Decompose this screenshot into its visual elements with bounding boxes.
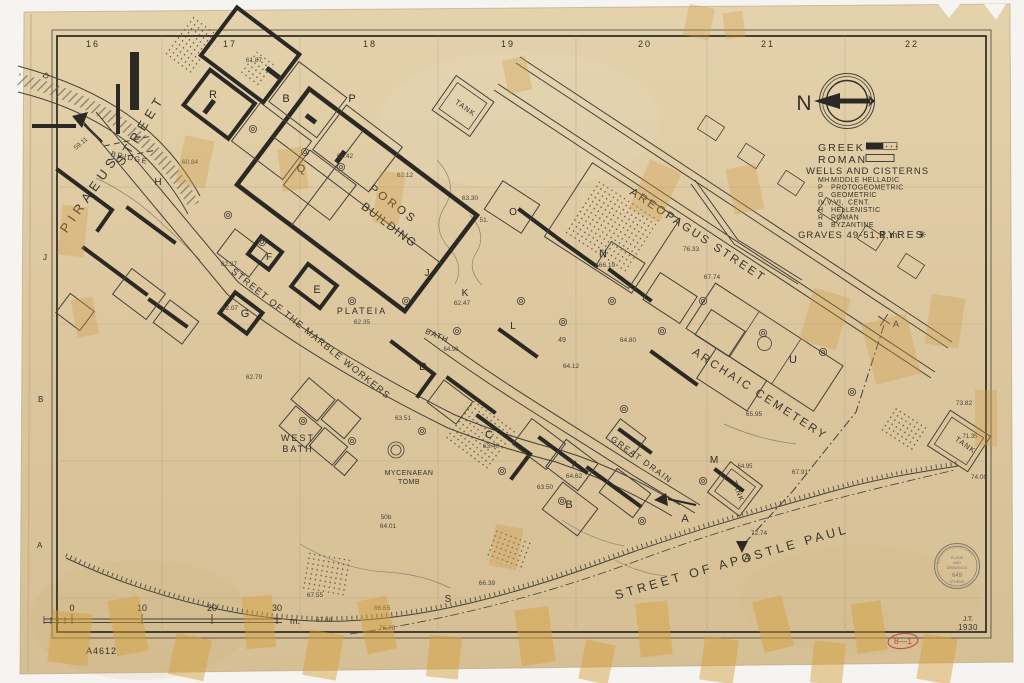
section-b-lower: B — [565, 499, 572, 511]
section-k: K — [462, 288, 469, 299]
scanned-map-photo: 16 17 18 19 20 21 22 D J B A — [0, 0, 1024, 683]
section-f: F — [266, 252, 272, 263]
legend-abbr-label-g: GEOMETRIC — [831, 192, 877, 199]
legend-abbr-code-p: P — [818, 185, 823, 192]
west-bath-1: WEST — [281, 433, 315, 443]
pyre-star-icon: ✳ — [918, 230, 926, 241]
section-o: O — [509, 207, 517, 218]
stamp-bottom: ATHENS — [949, 580, 965, 584]
section-e: E — [313, 284, 320, 296]
scale-tick-0: 0 — [69, 603, 74, 613]
grid-col-19: 19 — [501, 39, 515, 49]
section-r: R — [209, 89, 217, 101]
elev-6142: 61.42 — [337, 153, 354, 160]
bath-elev: 64.96 — [443, 347, 459, 353]
section-b-upper: B — [282, 93, 289, 105]
agora-excavation-plan: 16 17 18 19 20 21 22 D J B A — [0, 0, 1024, 683]
legend-abbr-code-mh: MH — [818, 177, 830, 184]
elev-6791: 67.91 — [792, 469, 809, 476]
legend-abbr-label-h: HELLENISTIC — [831, 207, 881, 214]
grid-col-16: 16 — [86, 39, 100, 49]
section-n: N — [599, 248, 607, 260]
section-g: G — [241, 308, 250, 320]
plateia-elev: 62.35 — [354, 319, 371, 326]
legend-abbr-code-h: H — [818, 207, 823, 214]
elev-6350b: 63.50 — [537, 484, 554, 491]
drawing-number: A4612 — [86, 646, 117, 656]
legend-abbr-label-b: BYZANTINE — [831, 222, 874, 229]
elev-6768: 67.68 — [316, 617, 333, 624]
elev-7633: 76.33 — [683, 246, 700, 253]
elev-7382: 73.82 — [956, 400, 973, 407]
legend-abbr-label-r: ROMAN — [831, 215, 859, 222]
section-u: U — [789, 354, 797, 366]
elev-6495: 64.95 — [737, 464, 753, 470]
grid-row-a: A — [37, 541, 43, 550]
elev-50b: 50b — [381, 514, 392, 521]
section-a: A — [681, 513, 689, 525]
grid-col-20: 20 — [638, 39, 652, 49]
compass-n-label: N — [796, 92, 811, 115]
legend-abbr-label-mh: MIDDLE HELLADIC — [831, 177, 900, 184]
grid-row-b: B — [38, 395, 43, 404]
elev-6227: 62.27 — [221, 261, 238, 268]
legend-abbr-code-cent: IV,V,VI, — [818, 200, 844, 207]
legend-greek-swatch — [866, 143, 897, 150]
drawing-year: 1930 — [958, 623, 978, 632]
section-c: C — [485, 429, 493, 441]
elev-7400: 74.00 — [971, 474, 988, 481]
elev-6755: 67.55 — [307, 592, 324, 599]
elev-6639: 66.39 — [479, 580, 496, 587]
elev-6412: 64.12 — [563, 363, 580, 370]
section-t: T — [570, 460, 576, 471]
elev-6207: 62.07 — [222, 305, 239, 312]
grid-col-22: 22 — [905, 39, 919, 49]
red-mark-text: 8—1 — [894, 636, 912, 646]
grid-col-17: 17 — [223, 39, 237, 49]
draftsman-initials: J.T. — [963, 616, 973, 623]
elev-6480: 64.80 — [620, 337, 637, 344]
elev-6340: 63.40 — [483, 443, 500, 450]
elev-6247: 62.47 — [454, 300, 471, 307]
section-s: S — [445, 594, 452, 605]
legend-abbr-code-r: R — [818, 215, 823, 222]
section-marker-a-bottom: A — [744, 553, 750, 563]
stamp-line1: PLANS — [951, 556, 964, 560]
section-m: M — [710, 455, 718, 466]
legend-abbr-label-p: PROTOGEOMETRIC — [831, 185, 904, 192]
stamp-number: 649 — [952, 573, 963, 579]
plateia-label: PLATEIA — [337, 306, 387, 316]
section-d: D — [419, 361, 427, 373]
grid-row-j: J — [43, 253, 47, 262]
elev-6462: 64.62 — [566, 473, 583, 480]
west-bath-2: BATH — [282, 444, 313, 454]
elev-6279: 62.79 — [246, 374, 263, 381]
grid-col-21: 21 — [761, 39, 775, 49]
elev-6774: 67.74 — [704, 274, 721, 281]
elev-6619: 66.19 — [599, 262, 616, 269]
section-l: L — [510, 321, 516, 332]
elev-6330: 63.30 — [462, 195, 479, 202]
scale-unit: m. — [290, 616, 300, 626]
legend-roman-label: ROMAN — [818, 154, 867, 166]
elev-6401: 64.01 — [380, 523, 397, 530]
elev-6187: 61.87 — [246, 57, 263, 64]
mycenaean-tomb-2: TOMB — [398, 479, 420, 486]
stamp-line3: DRAWINGS — [947, 566, 968, 570]
legend-abbr-code-b: B — [818, 222, 823, 229]
elev-49: 49 — [558, 337, 566, 344]
elev-6351: 63.51 — [395, 415, 412, 422]
grid-col-18: 18 — [363, 39, 377, 49]
scale-tick-20: 20 — [207, 603, 217, 613]
legend-wells-title: WELLS AND CISTERNS — [806, 166, 929, 177]
legend-greek-label: GREEK — [818, 142, 865, 154]
section-p: P — [348, 93, 355, 105]
section-j: J — [425, 268, 430, 279]
scale-tick-30: 30 — [272, 603, 282, 613]
elev-51: 51. — [479, 217, 488, 224]
elev-6595: 65.95 — [746, 411, 763, 418]
legend-abbr-label-cent: CENT. — [848, 200, 870, 207]
legend-abbr-code-g: G — [818, 192, 824, 199]
stamp-line2: AND — [953, 561, 961, 565]
elev-7274: 72.74 — [751, 530, 768, 537]
mycenaean-tomb-1: MYCENAEAN — [385, 470, 434, 477]
section-h: H — [154, 177, 161, 188]
